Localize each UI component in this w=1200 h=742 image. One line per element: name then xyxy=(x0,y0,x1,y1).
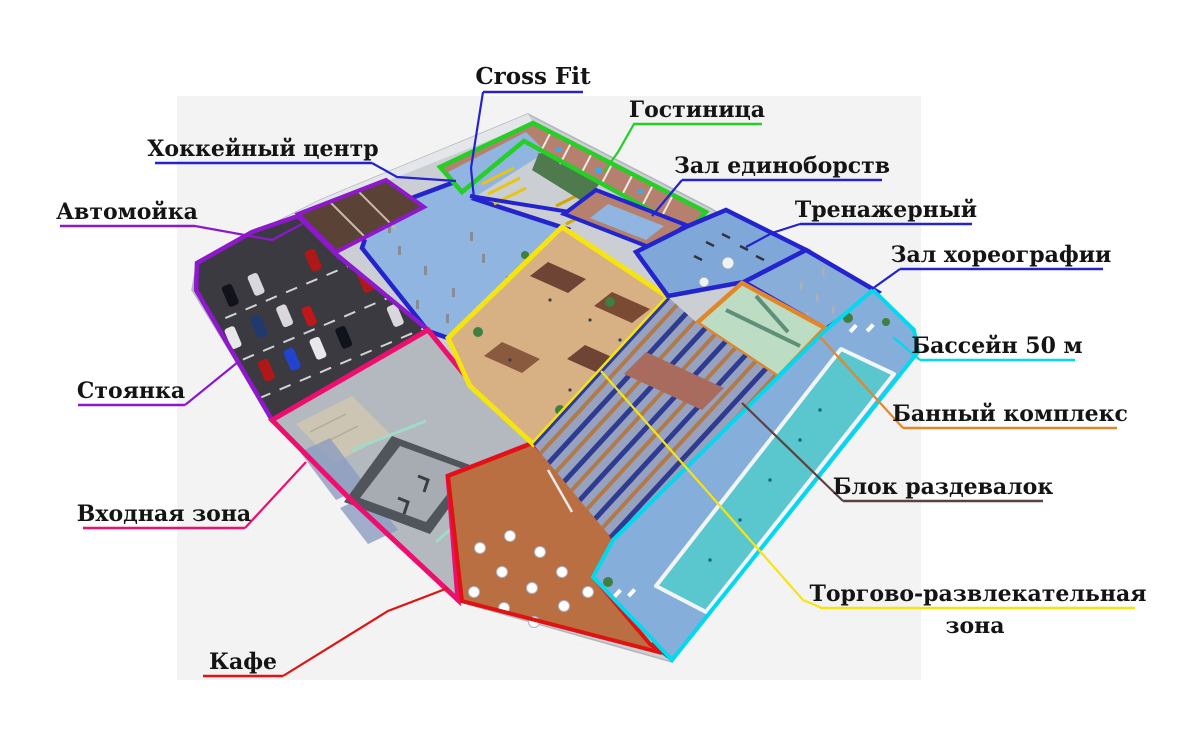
cafe-table xyxy=(583,587,594,598)
label-hockey-center: Хоккейный центр xyxy=(147,136,378,162)
lounger xyxy=(575,642,584,646)
label-cross-fit: Cross Fit xyxy=(475,63,591,90)
label-pool: Бассейн 50 м xyxy=(911,333,1082,359)
gym-tub xyxy=(722,257,734,269)
pillar xyxy=(470,232,473,241)
label-hotel: Гостиница xyxy=(629,97,765,123)
cafe-table xyxy=(527,583,538,594)
cafe-table xyxy=(469,587,480,598)
label-gym: Тренажерный xyxy=(795,197,977,223)
cafe-table xyxy=(497,567,508,578)
pillar xyxy=(398,246,401,255)
floor-plan-figure: Cross Fit Гостиница Хоккейный центр Авто… xyxy=(0,0,1200,742)
pillar xyxy=(800,282,803,290)
label-lockers: Блок раздевалок xyxy=(833,474,1054,500)
label-retail-line1: Торгово-развлекательная xyxy=(810,581,1147,607)
pillar xyxy=(482,254,485,263)
floor-plan-rendering: Cross Fit Гостиница Хоккейный центр Авто… xyxy=(0,0,1200,742)
pillar xyxy=(816,294,819,302)
cafe-table xyxy=(505,531,516,542)
pillar xyxy=(446,314,449,323)
label-martial-arts: Зал единоборств xyxy=(674,153,890,179)
label-choreography: Зал хореографии xyxy=(891,242,1112,268)
label-retail-line2: зона xyxy=(945,613,1004,639)
label-cafe: Кафе xyxy=(209,649,277,675)
pillar xyxy=(424,266,427,275)
pillar xyxy=(822,268,825,276)
label-bath: Банный комплекс xyxy=(892,401,1128,427)
label-parking: Стоянка xyxy=(77,378,185,404)
lounger xyxy=(560,638,569,642)
cafe-table xyxy=(559,601,570,612)
pillar xyxy=(452,288,455,297)
cafe-table xyxy=(557,567,568,578)
pillar xyxy=(832,306,835,314)
pillar xyxy=(416,300,419,309)
lounger xyxy=(545,633,554,637)
gym-tub xyxy=(699,277,709,287)
cafe-table xyxy=(535,547,546,558)
label-entrance: Входная зона xyxy=(77,501,251,527)
label-car-wash: Автомойка xyxy=(56,199,198,225)
cafe-table xyxy=(475,543,486,554)
